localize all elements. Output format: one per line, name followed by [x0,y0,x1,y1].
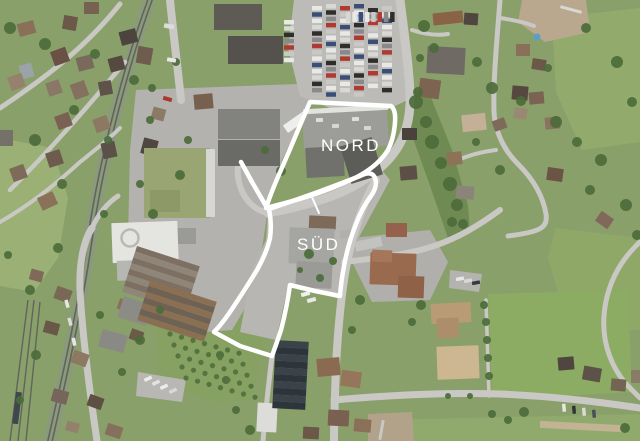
parked-car [340,38,350,43]
parked-car [340,50,350,55]
parked-car [368,77,378,82]
tree [297,267,303,273]
area-label-nord: NORD [321,137,381,154]
parked-car [326,48,336,53]
parked-car [368,52,378,57]
parked-car [312,63,322,67]
building-roof [611,378,627,391]
tree [572,137,582,147]
orchard-tree [183,346,188,351]
tree [135,335,145,345]
tree [480,301,488,309]
parked-car [354,23,364,28]
aerial-photo-canvas [0,0,640,441]
parked-car [368,27,378,32]
orchard-tree [233,369,238,374]
parked-car [382,31,392,36]
tree [472,138,480,146]
tree [118,368,126,376]
parked-car [326,73,336,78]
orchard-tree [225,347,230,352]
building-roof [399,165,417,180]
parked-car [346,12,351,22]
tree [148,84,156,92]
parked-car [354,54,364,59]
orchard-tree [195,379,200,384]
parked-car [326,86,336,91]
parked-car [368,40,378,45]
parked-car [354,92,364,97]
parked-car [312,56,322,61]
tree [96,311,104,319]
tree [329,257,337,265]
orchard-tree [229,358,234,363]
parked-car [382,69,392,74]
orchard-tree [202,371,207,376]
orchard-tree [225,377,230,382]
tree [488,410,496,418]
parked-car [284,52,294,57]
parked-car [354,73,364,78]
tree [348,326,356,334]
tree [482,318,490,326]
building-roof [516,44,530,56]
building-roof [136,46,154,65]
parked-car [368,58,378,63]
building-roof [446,151,463,166]
parked-car [312,12,322,16]
orchard-tree [236,351,241,356]
building-roof [316,118,323,122]
building-roof [352,117,359,121]
tree [485,372,493,380]
building-roof [316,357,340,377]
parked-car [326,36,336,41]
field [488,290,632,396]
parked-car [340,31,350,36]
tree [416,54,424,62]
building-roof [557,356,574,370]
parked-car [352,12,357,22]
building-roof [461,113,487,132]
parked-car [312,69,322,74]
tree [420,116,432,128]
building-roof [98,80,113,96]
parked-car [326,42,336,47]
building-roof [513,107,527,120]
tree [435,157,447,169]
parked-car [354,86,364,91]
parked-car [326,4,336,9]
tree [504,416,512,424]
parked-car [312,31,322,36]
orchard-tree [248,384,253,389]
tree [31,350,41,360]
tree [611,56,623,68]
area-label-sud: SÜD [297,236,340,253]
orchard-tree [206,352,211,357]
orchard-tree [179,335,184,340]
parked-car [312,82,322,87]
tree [416,300,426,310]
building-roof [228,36,283,64]
parked-car [382,44,392,49]
parked-car [326,80,336,85]
tree [409,95,423,109]
parked-car [340,56,350,61]
tree [53,243,63,253]
orchard-tree [191,368,196,373]
tree [550,116,562,128]
parked-car [284,45,294,50]
orchard-tree [187,357,192,362]
parked-car [368,84,378,89]
parked-car [368,71,378,76]
orchard-tree [210,363,215,368]
parked-car [382,6,392,11]
parked-car [354,48,364,53]
tree [458,219,468,229]
tree [316,274,324,282]
parked-car [359,12,364,22]
parked-car [312,38,322,43]
orchard-tree [218,385,223,390]
parked-car [284,39,294,44]
tree [418,20,430,32]
parked-car [340,75,350,80]
car [592,410,596,418]
building-roof [353,418,371,432]
orchard-tree [206,382,211,387]
orchard-tree [194,349,199,354]
car [582,408,586,416]
industrial-roof [272,340,309,410]
building-roof [398,276,425,299]
parked-car [284,20,294,25]
tree [175,170,185,180]
parked-car [371,12,376,22]
building-roof [332,124,339,128]
tree [408,318,416,326]
parked-car [326,29,336,34]
tree [4,251,12,259]
tree [184,136,192,144]
orchard-tree [217,355,222,360]
tree [57,179,67,189]
tree [261,146,269,154]
aerial-site-map: NORD SÜD [0,0,640,441]
tree [136,180,144,188]
parked-car [382,50,392,55]
parked-car [284,26,294,31]
building-roof [295,261,332,289]
parked-car [354,4,364,9]
building-roof [546,167,564,182]
parked-car [340,44,350,49]
parked-car [312,19,322,24]
tree [447,217,457,227]
building-roof [436,317,459,338]
tree [425,135,439,149]
parked-car [340,6,350,11]
orchard-tree [171,342,176,347]
tree [146,116,154,124]
parked-car [312,88,322,93]
car [572,406,576,414]
orchard-tree [244,373,249,378]
tree [483,336,491,344]
tree [355,295,365,305]
tree [156,306,164,314]
orchard-tree [190,338,195,343]
orchard-tree [221,366,226,371]
building-roof [303,427,320,440]
parked-car [340,69,350,74]
orchard-tree [183,375,188,380]
parked-car [384,12,389,22]
parked-car [326,17,336,22]
tree [544,64,552,72]
building-roof [206,149,215,217]
orchard-tree [179,364,184,369]
tree [413,87,423,97]
parked-car [378,12,383,22]
orchard-tree [213,344,218,349]
building-roof [218,140,280,166]
parked-car [382,63,392,67]
building-roof [464,13,479,26]
parked-car [368,8,378,13]
parked-car [312,44,322,49]
tree [451,199,463,211]
building-roof [84,2,99,14]
tree [104,136,112,144]
building-roof [631,370,640,383]
tree [486,82,498,94]
orchard-tree [167,331,172,336]
parked-car [312,50,322,55]
building-roof [455,185,474,200]
parked-car [368,33,378,38]
tree [627,97,637,107]
building-roof [372,250,392,263]
tree [232,406,240,414]
building-roof [150,190,180,212]
orchard-tree [252,395,257,400]
tree [429,43,439,53]
tree [443,177,457,191]
orchard-tree [240,362,245,367]
parked-car [312,25,322,30]
swimming-pool [534,34,541,41]
parked-car [382,75,392,80]
parked-car [382,88,392,93]
building-roof [214,4,262,30]
tree [129,75,139,85]
building-roof [328,409,350,426]
parked-car [284,58,294,63]
parked-car [312,75,322,80]
parked-car [382,38,392,43]
tree [148,209,158,219]
orchard-tree [202,341,207,346]
tree [16,396,24,404]
tree [595,154,607,166]
car [562,404,566,412]
parked-car [326,67,336,72]
parked-car [284,33,294,38]
tree [100,210,108,218]
parked-car [326,61,336,65]
tree [445,393,451,399]
building-roof [402,128,417,140]
parked-car [390,12,395,22]
parked-car [354,42,364,47]
tree [90,49,100,59]
parked-car [326,10,336,15]
parked-car [368,65,378,70]
parked-car [326,23,336,28]
parked-car [340,82,350,87]
parked-car [354,80,364,85]
tree [581,23,591,33]
building-roof [529,91,545,104]
tree [4,22,16,34]
tree [585,185,595,195]
sports-court [386,223,407,237]
building-roof [340,370,362,389]
tree [467,393,473,399]
tree [245,425,255,435]
orchard-tree [214,374,219,379]
tree [516,96,526,106]
parked-car [382,82,392,87]
tree [29,134,41,146]
parked-car [354,29,364,34]
orchard-tree [198,360,203,365]
tree [484,354,492,362]
building-roof [364,126,371,130]
tree [25,285,35,295]
building-roof [218,109,280,139]
tree [495,165,505,175]
tree [620,199,632,211]
building-roof [0,130,13,146]
orchard-tree [175,353,180,358]
tree [39,38,51,50]
parked-car [340,63,350,67]
parked-car [368,46,378,51]
building-roof [62,15,78,31]
parked-car [354,67,364,72]
parked-car [312,6,322,11]
orchard-tree [241,391,246,396]
tree [472,57,482,67]
parked-car [382,25,392,30]
parked-car [365,12,370,22]
parked-car [326,92,336,97]
parked-car [382,56,392,61]
parked-car [354,36,364,41]
parked-car [354,61,364,65]
parked-car [340,88,350,93]
parked-car [340,25,350,30]
tree [69,105,79,115]
orchard-tree [229,388,234,393]
construction-dirt [368,412,414,441]
tree [620,423,630,433]
building-roof [309,215,337,229]
building-roof [193,93,213,110]
sports-court [436,345,479,379]
orchard-tree [237,380,242,385]
tree [519,407,529,417]
parked-car [326,54,336,59]
